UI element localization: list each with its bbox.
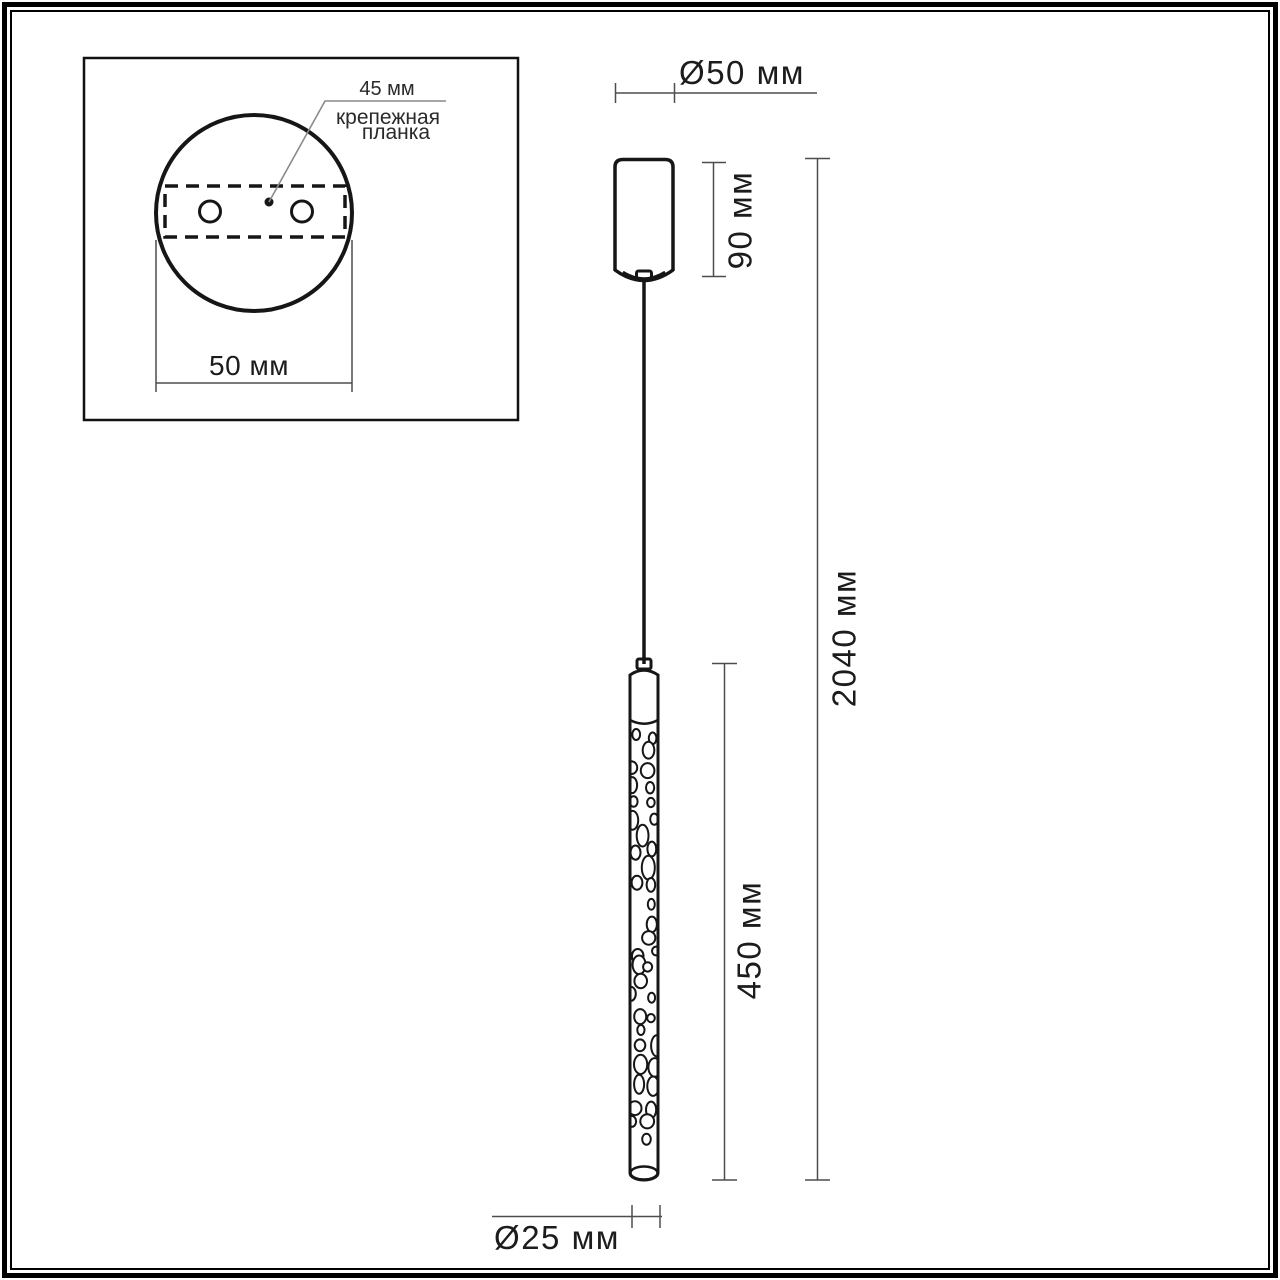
glass-bubble	[640, 1114, 654, 1128]
glass-bubble	[642, 1134, 651, 1145]
shade-diameter-label: Ø25 мм	[494, 1219, 620, 1256]
glass-bubble	[634, 1075, 644, 1094]
glass-bubble	[643, 962, 652, 971]
bracket-width-label: 45 мм	[359, 78, 414, 100]
shade-diameter-dimension: Ø25 мм	[492, 1205, 662, 1256]
glass-bubble	[634, 974, 647, 988]
glass-bubble	[647, 917, 657, 933]
overall-height-dimension: 2040 мм	[805, 158, 863, 1180]
inset-box	[84, 58, 518, 420]
pendant-side-view	[615, 160, 673, 1181]
canopy-height-label: 90 мм	[722, 171, 759, 270]
glass-bubble	[632, 876, 643, 890]
glass-bubble	[642, 856, 655, 880]
glass-bubble	[643, 742, 655, 759]
mounting-plate-caption-line2: планка	[362, 121, 431, 144]
glass-bubble	[637, 825, 649, 847]
glass-bubble	[648, 899, 655, 910]
glass-bubble	[634, 1009, 646, 1024]
glass-bubble	[631, 846, 641, 860]
glass-bubble	[634, 1055, 647, 1074]
glass-bubble	[637, 1025, 644, 1035]
shade-section-divider	[630, 720, 658, 724]
glass-bubble	[641, 763, 655, 778]
glass-bubble	[626, 761, 637, 774]
canopy-body	[615, 160, 673, 272]
glass-bubble	[648, 993, 655, 1003]
base-diameter-label: 50 мм	[209, 350, 289, 381]
overall-height-label: 2040 мм	[826, 569, 863, 707]
glass-bubble	[647, 878, 656, 892]
canopy-height-dimension: 90 мм	[702, 162, 759, 277]
glass-bubble	[632, 729, 640, 740]
canopy-diameter-label: Ø50 мм	[679, 54, 805, 91]
glass-bubble	[635, 1039, 646, 1051]
canopy-cable-gland	[637, 271, 652, 280]
technical-drawing-page: 45 мм крепежная планка 50 мм	[0, 0, 1280, 1280]
canopy-diameter-dimension: Ø50 мм	[615, 54, 817, 103]
glass-bubble	[647, 798, 655, 807]
shade-bottom-edge	[630, 1173, 658, 1180]
glass-bubble	[647, 1014, 655, 1022]
glass-bubble	[646, 782, 654, 793]
shade-length-dimension: 450 мм	[712, 663, 768, 1180]
mount-detail-inset: 45 мм крепежная планка 50 мм	[84, 58, 518, 420]
glass-bubble	[642, 931, 655, 945]
pendant-lamp-dimension-drawing: 45 мм крепежная планка 50 мм	[0, 0, 1280, 1280]
glass-bubble	[647, 842, 656, 857]
shade-length-label: 450 мм	[731, 881, 768, 1000]
